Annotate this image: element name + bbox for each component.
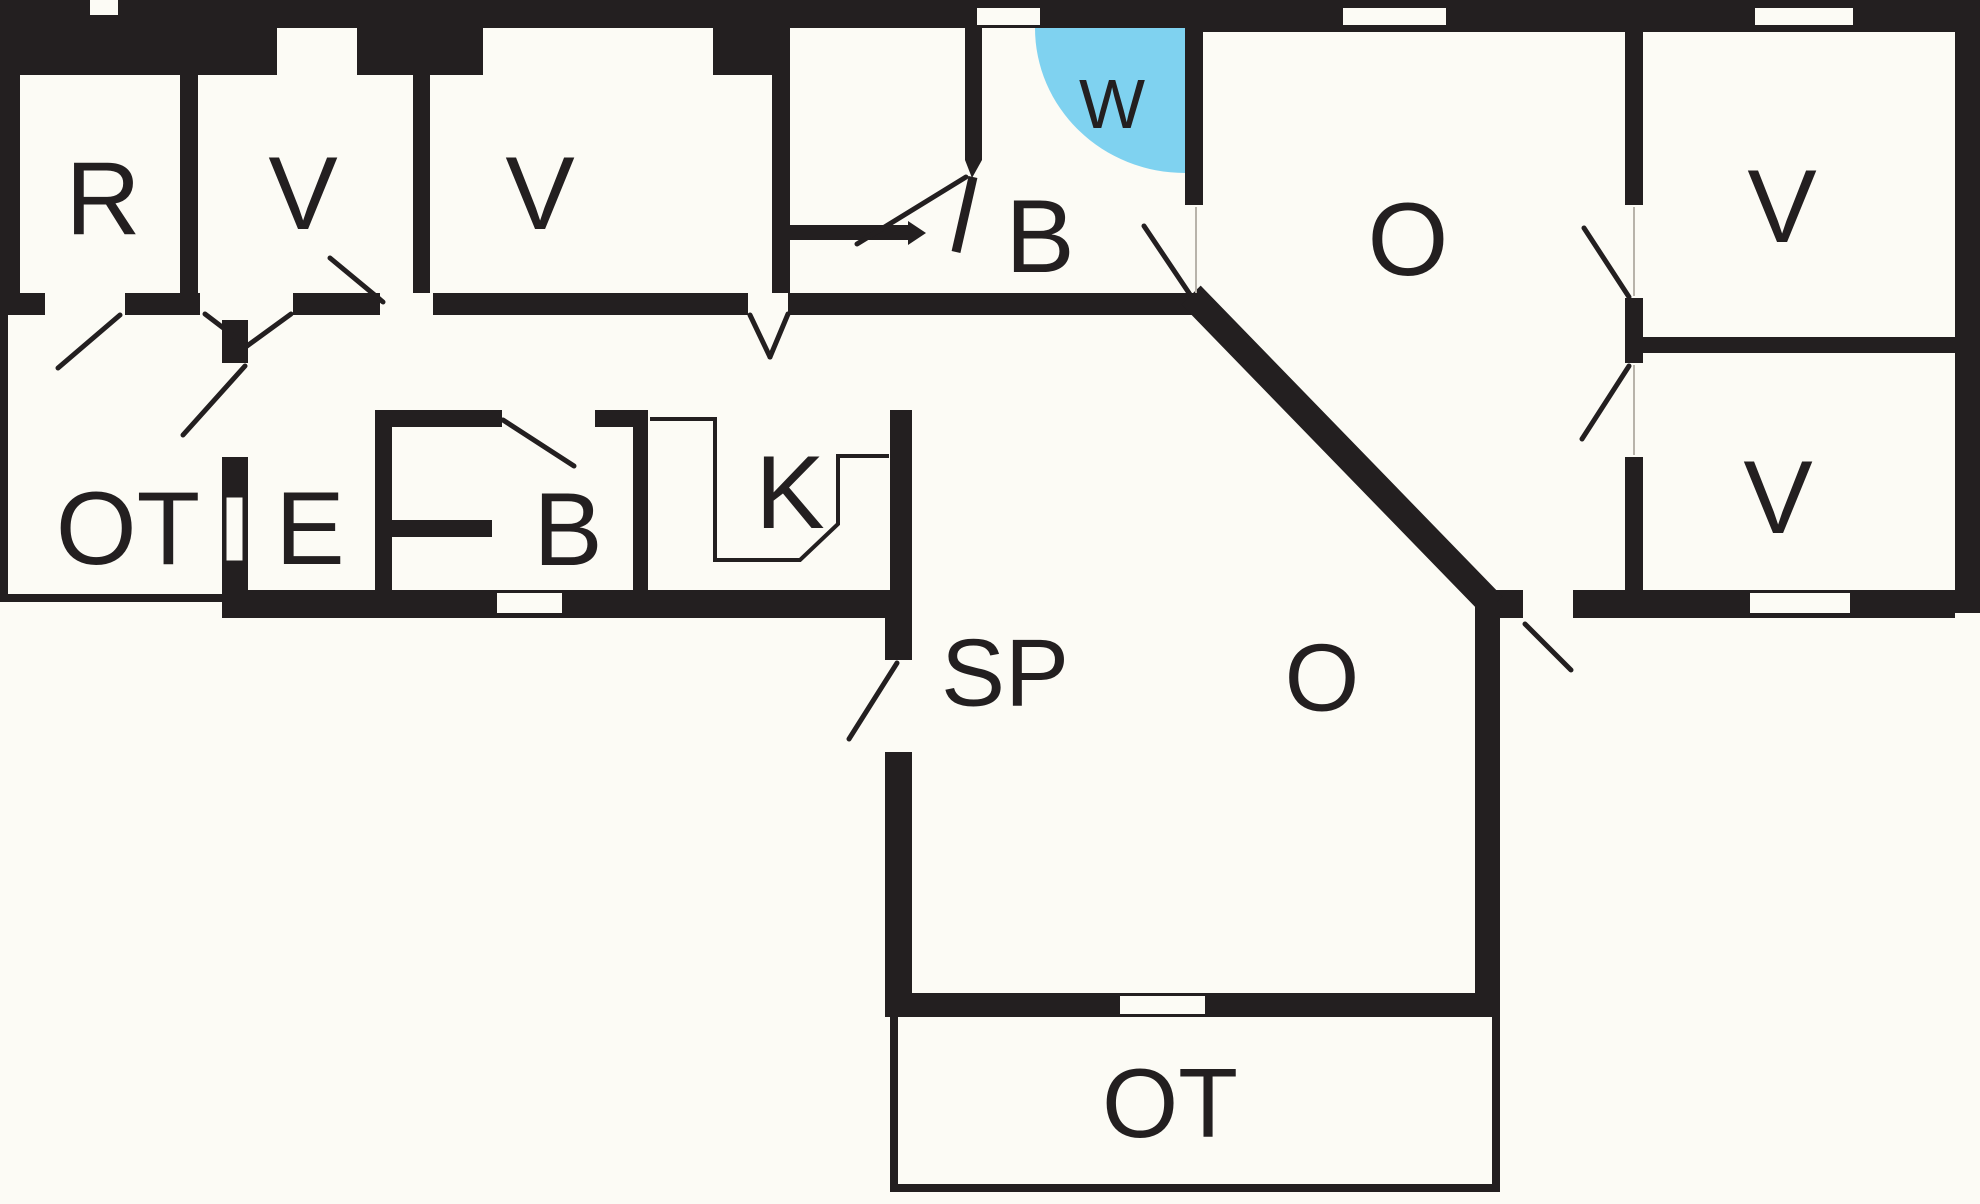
window-v3 <box>1755 8 1853 25</box>
window-o-top <box>1343 8 1446 25</box>
wall-v1-v2 <box>413 75 430 293</box>
wall-corridor-stub <box>790 225 908 240</box>
wall-middle-bottom <box>222 590 912 618</box>
wall-terrace2-left <box>890 1017 898 1192</box>
room-label-ot2: OT <box>1102 1048 1238 1158</box>
room-label-o1: O <box>1368 182 1449 298</box>
floor-plan: R V V B W O V V OT E B K SP O OT <box>0 0 1980 1204</box>
door-gap-v2 <box>748 293 788 315</box>
wall-b2-right <box>633 410 648 590</box>
wall-b2-top-left <box>375 410 502 427</box>
room-label-e: E <box>275 471 344 587</box>
room-label-k: K <box>755 435 824 551</box>
wall-o-v-top <box>1625 28 1643 205</box>
wall-o-v-mid <box>1625 298 1643 363</box>
door-gap-v1-closet <box>200 293 293 315</box>
wall-corridor-b <box>965 28 982 160</box>
wall-top-header-r <box>0 25 277 75</box>
wall-terrace-left-bottom <box>0 594 224 602</box>
wall-left-terrace-thin <box>0 313 8 600</box>
wall-sp-right <box>1475 602 1500 1017</box>
room-label-v3: V <box>1747 149 1816 265</box>
wall-b-o <box>1185 28 1203 205</box>
wall-left <box>0 28 20 313</box>
wall-k-right <box>890 410 912 590</box>
room-label-b1: B <box>1005 179 1074 295</box>
wall-v2-corridor <box>772 28 790 293</box>
window-r <box>90 0 118 15</box>
wall-terrace2-bottom <box>890 1184 1500 1192</box>
room-label-w: W <box>1079 65 1145 143</box>
wall-terrace2-right <box>1492 1017 1500 1192</box>
wall-r-v1 <box>180 75 198 293</box>
window-b2-bottom <box>497 593 562 613</box>
wall-b2-left <box>375 410 392 590</box>
door-gap-r <box>45 293 125 315</box>
floor-plan-page: R V V B W O V V OT E B K SP O OT <box>0 0 1980 1204</box>
window-v4-bottom <box>1750 593 1850 613</box>
wall-b2-stub <box>375 520 492 537</box>
room-label-o2: O <box>1285 625 1360 732</box>
wall-o-v-bottom <box>1625 457 1643 592</box>
wall-v3-v4 <box>1625 337 1955 353</box>
door-leaf-ot-e <box>225 496 244 562</box>
wall-topband-bottom <box>0 293 1197 315</box>
room-label-v1: V <box>268 136 337 252</box>
room-label-b2: B <box>533 472 602 588</box>
room-label-sp: SP <box>941 620 1069 727</box>
wall-top-header-v1 <box>357 25 483 75</box>
wall-top-right <box>1203 0 1980 32</box>
window-sp-bottom <box>1120 996 1205 1014</box>
window-corridor <box>977 8 1040 25</box>
wall-right <box>1955 28 1980 613</box>
room-label-v2: V <box>505 136 574 252</box>
room-label-v4: V <box>1743 440 1812 556</box>
room-label-r: R <box>65 141 140 257</box>
door-gap-v1 <box>380 293 433 315</box>
room-label-ot1: OT <box>56 471 200 587</box>
